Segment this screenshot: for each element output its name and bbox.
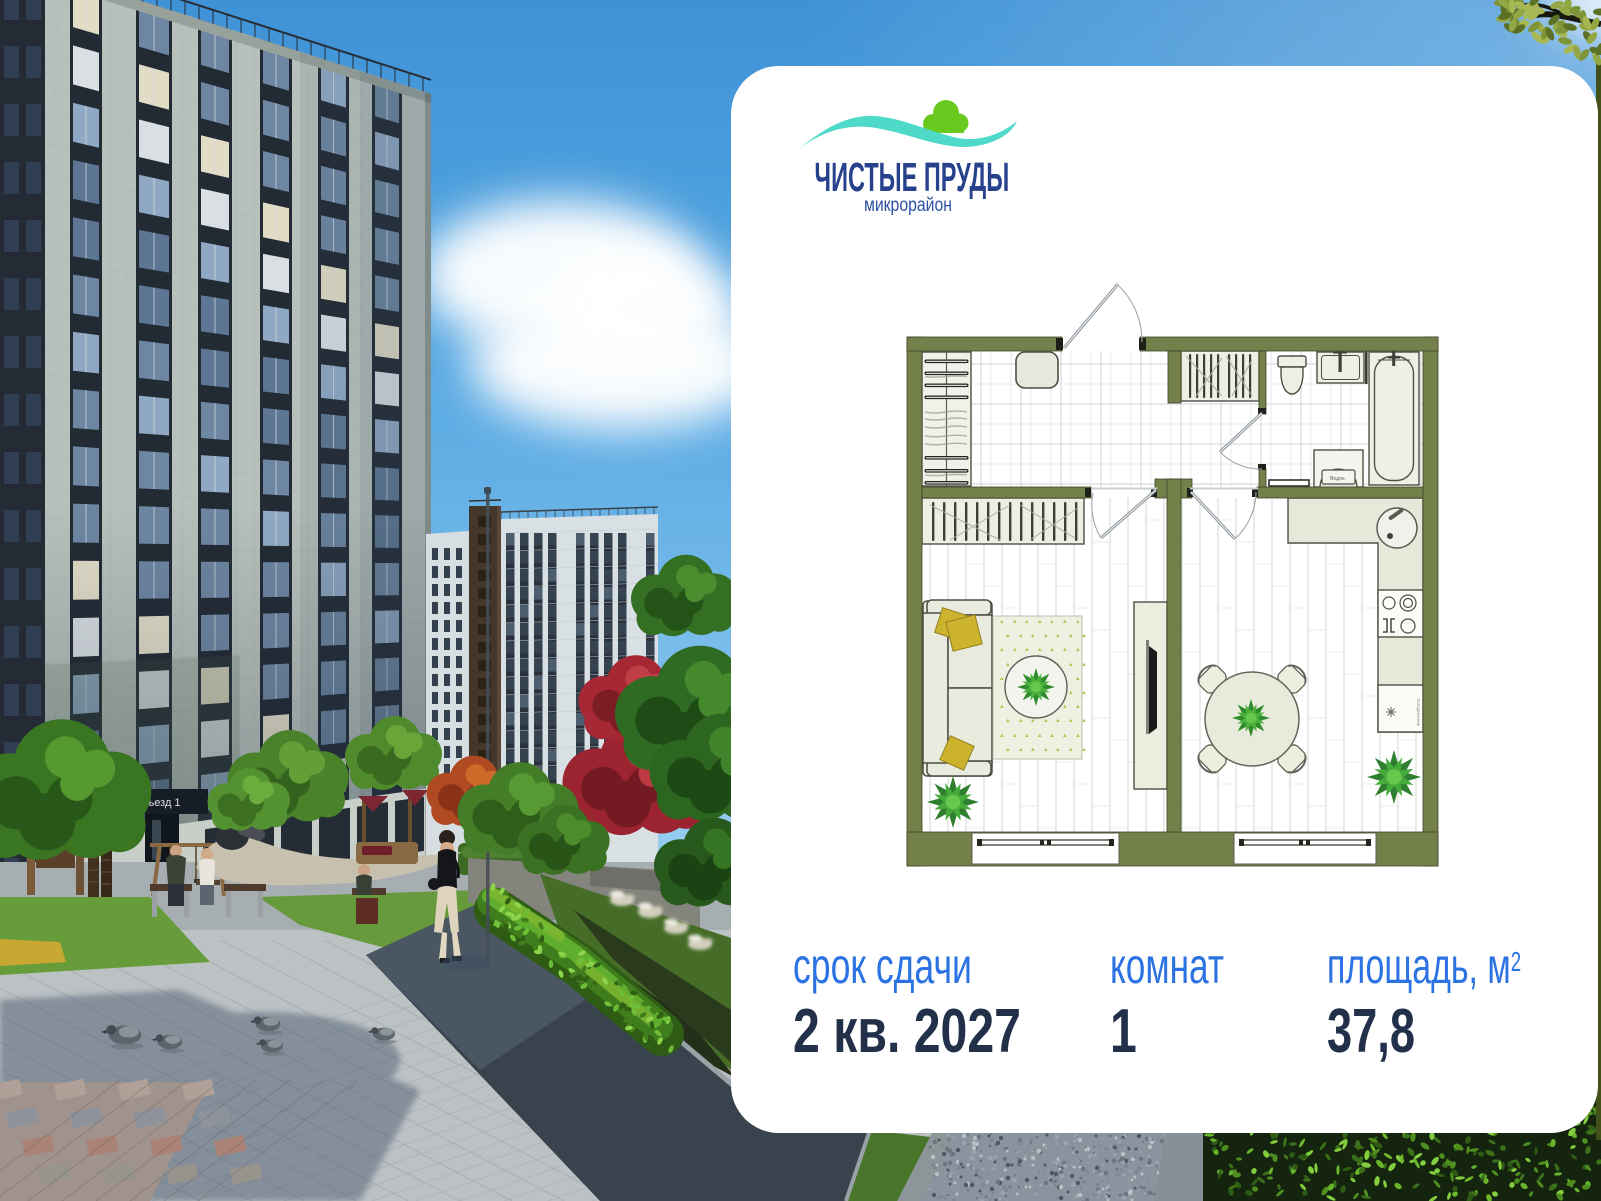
svg-text:Холодильник: Холодильник — [1416, 698, 1421, 726]
svg-text:Водон.: Водон. — [1330, 476, 1346, 482]
